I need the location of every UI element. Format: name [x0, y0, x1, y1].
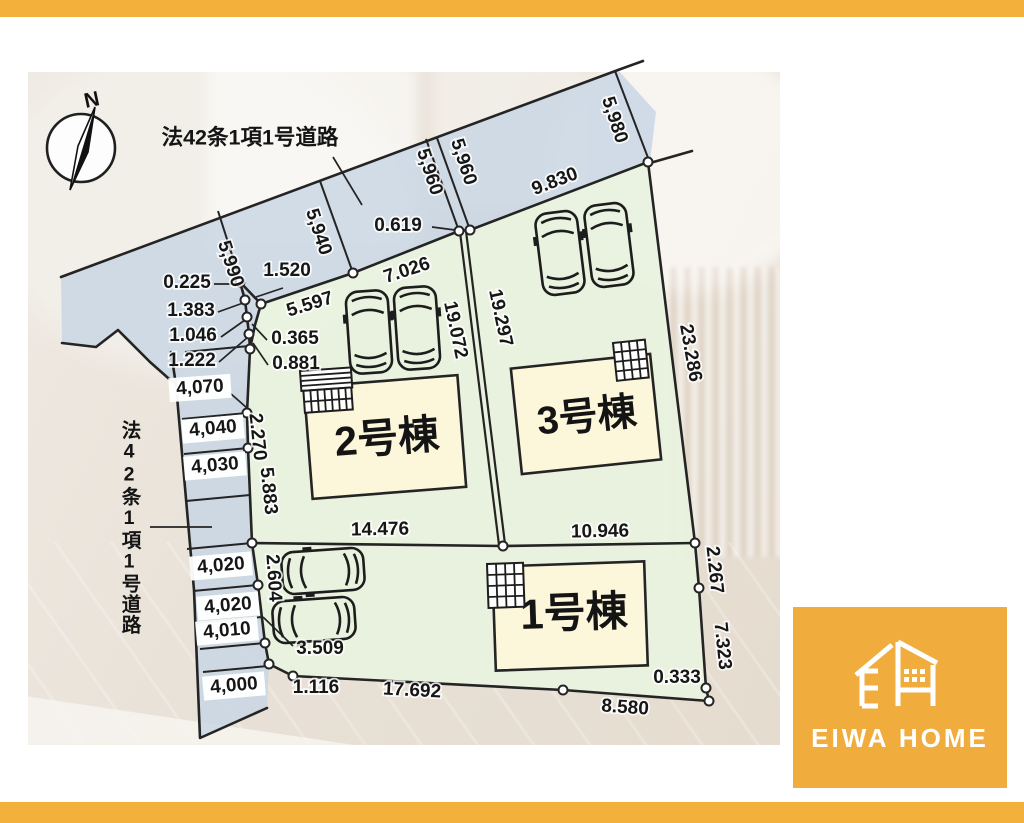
- dim-4030: 4,030: [190, 453, 239, 478]
- dim-0365: 0.365: [271, 328, 319, 349]
- hatched-structure-lot1: [487, 563, 525, 608]
- dim-3509: 3.509: [296, 638, 344, 659]
- dim-17692: 17.692: [382, 679, 441, 703]
- dim-0881: 0.881: [272, 353, 320, 374]
- road-label-left: 法42条1項1号道路: [118, 419, 141, 635]
- dim-14476: 14.476: [351, 519, 409, 541]
- hatched-structure-lot2: [300, 367, 354, 412]
- road-label-top: 法42条1項1号道路: [162, 125, 339, 150]
- hatched-structure-lot3: [613, 340, 649, 381]
- dim-4020-a: 4,020: [196, 553, 245, 578]
- dim-23286: 23.286: [675, 322, 706, 383]
- dim-2604: 2.604: [261, 554, 285, 603]
- dim-4010: 4,010: [202, 618, 251, 643]
- dim-0333: 0.333: [653, 667, 701, 688]
- dim-0225: 0.225: [163, 272, 211, 293]
- dim-1116: 1.116: [293, 677, 340, 698]
- dim-1520: 1.520: [263, 260, 311, 281]
- dim-4020-b: 4,020: [203, 593, 252, 618]
- dim-1046: 1.046: [169, 325, 217, 346]
- dim-8580: 8.580: [601, 695, 650, 719]
- brand-name: EIWA HOME: [811, 723, 989, 754]
- dim-0619: 0.619: [374, 215, 422, 236]
- north-compass: N: [47, 87, 115, 190]
- dim-1383: 1.383: [167, 300, 215, 321]
- north-label: N: [82, 87, 102, 113]
- house-icon: [840, 621, 960, 721]
- dim-2267: 2.267: [702, 545, 728, 594]
- page: 2号棟 3号棟 1号棟: [0, 0, 1024, 823]
- dim-10946: 10.946: [571, 521, 629, 543]
- dim-4040: 4,040: [188, 416, 237, 441]
- dim-7323: 7.323: [710, 621, 736, 670]
- dim-1222: 1.222: [168, 350, 216, 371]
- dim-4000: 4,000: [209, 673, 258, 698]
- building-1-label: 1号棟: [519, 587, 629, 638]
- dim-4070: 4,070: [176, 375, 225, 399]
- eiwa-home-logo: EIWA HOME: [793, 607, 1007, 788]
- building-2-label: 2号棟: [333, 411, 442, 465]
- bottom-accent-bar: [0, 802, 1024, 823]
